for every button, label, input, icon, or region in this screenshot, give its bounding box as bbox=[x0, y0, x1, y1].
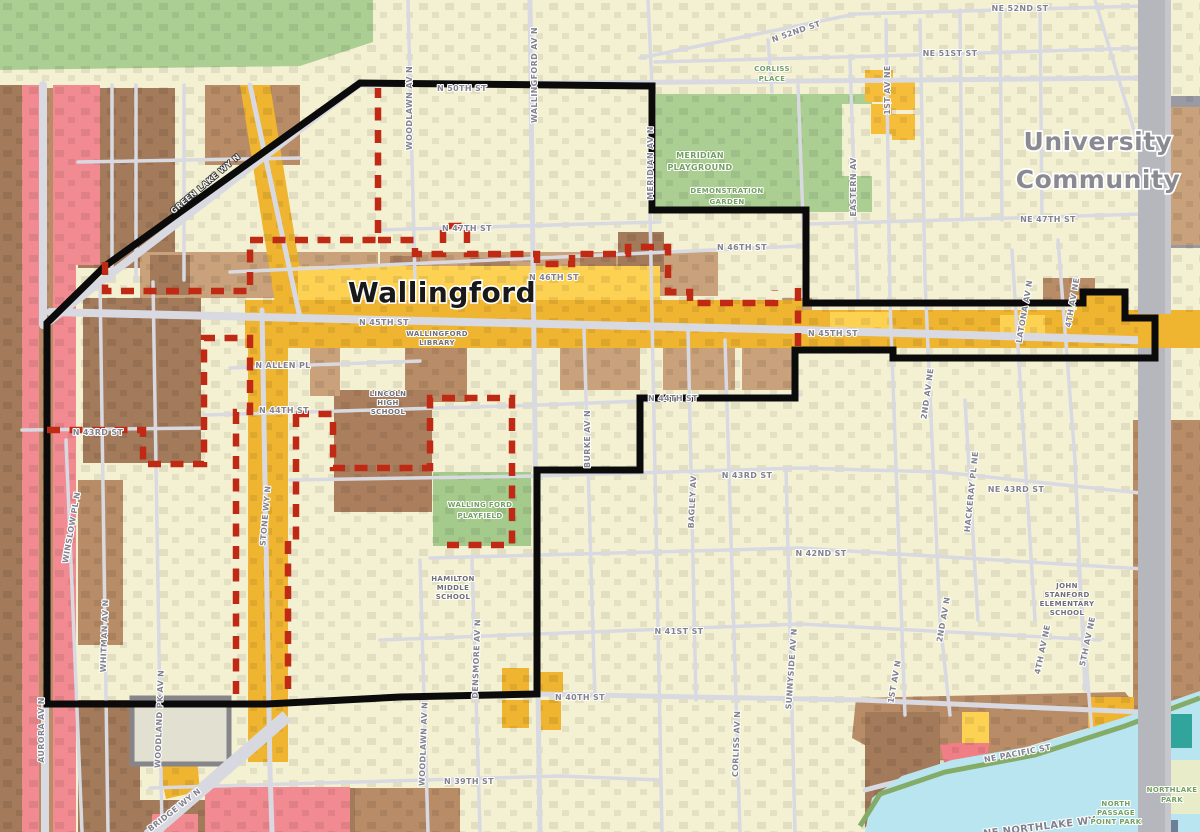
place-label-library-1: WALLINGFORD bbox=[406, 330, 468, 338]
place-label-hamilton-3: SCHOOL bbox=[436, 593, 471, 601]
map-canvas: Wallingford University Community NE 52ND… bbox=[0, 0, 1200, 832]
place-label-demonstration-garden-2: GARDEN bbox=[709, 198, 744, 206]
place-label-passage-point-1: NORTH bbox=[1101, 800, 1130, 808]
place-label-stanford-1: JOHN bbox=[1055, 582, 1078, 590]
street-label-ne52nd: NE 52ND ST bbox=[992, 4, 1049, 13]
street-label-ne47th: NE 47TH ST bbox=[1020, 215, 1076, 224]
place-label-lincoln-3: SCHOOL bbox=[371, 408, 406, 416]
place-label-stanford-3: ELEMENTARY bbox=[1040, 600, 1095, 608]
street-label-n50th: N 50TH ST bbox=[437, 84, 487, 93]
street-label-1st-av-ne: 1ST AV NE bbox=[883, 65, 892, 115]
street-label-n44th-west: N 44TH ST bbox=[259, 406, 309, 415]
place-label-corliss-place-1: CORLISS bbox=[754, 65, 790, 73]
street-label-allen-pl: N ALLEN PL bbox=[255, 361, 310, 370]
wallingford-zoning-map[interactable]: Wallingford University Community NE 52ND… bbox=[0, 0, 1200, 832]
place-label-demonstration-garden-1: DEMONSTRATION bbox=[690, 187, 763, 195]
street-label-wallingford-av: WALLINGFORD AV N bbox=[530, 27, 539, 123]
street-label-n45th-east: N 45TH ST bbox=[808, 329, 858, 338]
street-label-woodlawn-north: WOODLAWN AV N bbox=[405, 66, 414, 150]
place-label-hamilton-1: HAMILTON bbox=[431, 575, 475, 583]
street-label-meridian-av: MERIDIAN AV N bbox=[646, 126, 655, 200]
university-community-label-2: Community bbox=[1016, 165, 1181, 194]
place-label-stanford-2: STANFORD bbox=[1044, 591, 1089, 599]
place-label-stanford-4: SCHOOL bbox=[1050, 609, 1085, 617]
street-label-n40th: N 40TH ST bbox=[555, 693, 605, 702]
place-label-meridian-playground-1: MERIDIAN bbox=[676, 151, 724, 160]
street-label-n45th-west: N 45TH ST bbox=[359, 318, 409, 327]
place-label-library-2: LIBRARY bbox=[419, 339, 455, 347]
place-label-playfield-1: WALLING FORD bbox=[448, 501, 513, 509]
university-community-label-1: University bbox=[1024, 127, 1173, 156]
place-label-playfield-2: PLAYFIELD bbox=[458, 512, 503, 520]
street-label-n42nd: N 42ND ST bbox=[795, 549, 846, 558]
place-label-passage-point-2: PASSAGE bbox=[1097, 809, 1135, 817]
place-label-northlake-park-2: PARK bbox=[1161, 796, 1183, 804]
street-label-n46th-east: N 46TH ST bbox=[717, 243, 767, 252]
gray-yard-block bbox=[132, 698, 229, 764]
place-label-corliss-place-2: PLACE bbox=[759, 75, 786, 83]
place-label-northlake-park-1: NORTHLAKE bbox=[1147, 786, 1198, 794]
street-label-burke-av: BURKE AV N bbox=[583, 410, 592, 468]
place-label-passage-point-3: POINT PARK bbox=[1091, 818, 1142, 826]
street-label-n43rd-far-west: N 43RD ST bbox=[73, 428, 124, 437]
place-label-meridian-playground-2: PLAYGROUND bbox=[667, 163, 732, 172]
street-label-n47th: N 47TH ST bbox=[442, 224, 492, 233]
street-label-ne51st: NE 51ST ST bbox=[923, 49, 978, 58]
place-label-lincoln-2: HIGH bbox=[377, 399, 398, 407]
place-label-hamilton-2: MIDDLE bbox=[437, 584, 470, 592]
street-label-n41st: N 41ST ST bbox=[655, 627, 704, 636]
street-label-eastern-av: EASTERN AV bbox=[849, 157, 858, 217]
place-label-lincoln-1: LINCOLN bbox=[370, 390, 407, 398]
street-label-n46th-west: N 46TH ST bbox=[529, 273, 579, 282]
street-label-aurora-av: AURORA AV N bbox=[37, 697, 46, 763]
street-label-n43rd: N 43RD ST bbox=[722, 471, 773, 480]
street-label-n44th-east: N 44TH ST bbox=[648, 394, 698, 403]
street-label-n39th: N 39TH ST bbox=[444, 777, 494, 786]
street-label-ne43rd: NE 43RD ST bbox=[988, 485, 1045, 494]
neighborhood-title: Wallingford bbox=[348, 276, 536, 309]
